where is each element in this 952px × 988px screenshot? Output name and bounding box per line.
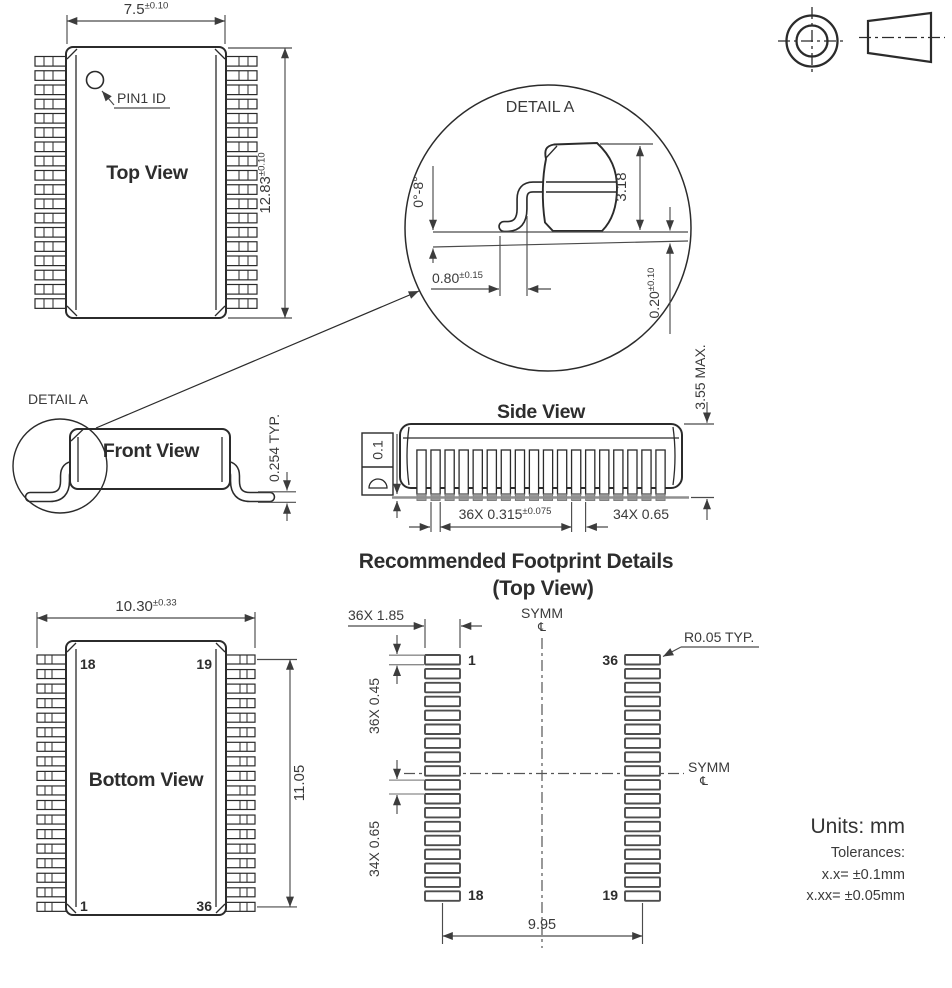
detail-body — [543, 143, 617, 231]
pin-lead — [417, 450, 426, 494]
dim-pad-length-value: 36X 1.85 — [348, 607, 404, 623]
footprint-pad — [625, 864, 660, 874]
pin-lead — [656, 450, 665, 494]
dim-lead-width: 36X 0.315±0.075 — [409, 502, 572, 532]
pin-lead — [473, 450, 482, 494]
footprint-pad — [425, 683, 460, 693]
leader-line — [663, 647, 681, 657]
front-view-title: Front View — [103, 440, 200, 462]
pin-lead — [226, 299, 257, 309]
package-drawing: PIN1 ID Top View 7.5±0.10 12.83±0.10 DET… — [0, 0, 952, 983]
pin-lead — [35, 285, 66, 295]
footprint-pad — [425, 850, 460, 860]
front-view: DETAIL A Front View 0.254 TYP. — [13, 391, 296, 521]
side-view-title: Side View — [497, 401, 586, 423]
pin-lead — [35, 57, 66, 67]
top-view: PIN1 ID Top View 7.5±0.10 12.83±0.10 — [35, 1, 292, 319]
pin-lead — [35, 270, 66, 280]
dim-lead-angle: 0°-8° — [410, 166, 433, 263]
dim-pad-length: 36X 1.85 — [348, 607, 482, 648]
dim-foot-length-value: 0.80±0.15 — [432, 270, 483, 286]
dim-pad-pitch-value: 34X 0.65 — [366, 821, 382, 877]
pin-lead — [35, 242, 66, 252]
pin-lead — [226, 71, 257, 81]
pin-lead — [35, 299, 66, 309]
pin-lead — [226, 57, 257, 67]
footprint-pad — [625, 808, 660, 818]
dim-standoff: 0.20±0.10 — [646, 207, 670, 334]
pin-lead — [226, 99, 257, 109]
footprint-title: Recommended Footprint Details — [359, 550, 674, 573]
bottom-view-pin19-label: 19 — [196, 656, 212, 672]
footprint-pad — [425, 877, 460, 887]
footprint-pad — [425, 697, 460, 707]
side-view-body — [400, 424, 682, 488]
detail-a-title: DETAIL A — [506, 99, 575, 116]
bottom-view-title: Bottom View — [89, 769, 205, 791]
dim-lead-pitch-value: 34X 0.65 — [613, 506, 669, 522]
dim-pad-corner-radius-value: R0.05 TYP. — [684, 629, 754, 645]
front-view-detail-callout: DETAIL A — [28, 391, 89, 407]
pin-lead — [586, 450, 595, 494]
pin-lead — [600, 450, 609, 494]
pin-lead — [501, 450, 510, 494]
package-drawing-page: PIN1 ID Top View 7.5±0.10 12.83±0.10 DET… — [0, 0, 952, 983]
pin-lead — [35, 199, 66, 209]
top-view-title: Top View — [106, 162, 189, 184]
footprint-pad — [425, 780, 460, 790]
dim-body-width: 7.5±0.10 — [67, 1, 225, 45]
pin-lead — [226, 213, 257, 223]
pin-lead — [642, 450, 651, 494]
pin-lead — [529, 450, 538, 494]
pin-lead — [459, 450, 468, 494]
side-view: Side View 0.1 3.55 MAX. — [362, 344, 714, 532]
dim-lead-width-value: 36X 0.315±0.075 — [459, 506, 552, 522]
dim-body-width-value: 7.5±0.10 — [124, 1, 169, 19]
dim-pad-row-span-value: 9.95 — [528, 917, 556, 933]
footprint-pad — [625, 683, 660, 693]
footprint-pad — [425, 669, 460, 679]
pin-lead — [558, 450, 567, 494]
pin-lead — [487, 450, 496, 494]
pin-lead — [226, 242, 257, 252]
footprint-pad — [425, 794, 460, 804]
dim-lead-thickness-value: 0.254 TYP. — [266, 414, 282, 482]
pin-lead — [431, 450, 440, 494]
footprint-pad — [425, 891, 460, 901]
footprint-pin18-label: 18 — [468, 887, 484, 903]
notes: Units: mm Tolerances: x.x= ±0.1mm x.xx= … — [806, 815, 905, 904]
footprint-pad — [625, 655, 660, 665]
third-angle-projection-symbol — [778, 7, 945, 75]
footprint-pad — [625, 891, 660, 901]
footprint-pad — [425, 836, 460, 846]
pin-lead — [35, 256, 66, 266]
dim-pad-width-value: 36X 0.45 — [366, 678, 382, 734]
centerline-symbol-icon: ℄ — [699, 774, 708, 788]
pin-lead — [226, 228, 257, 238]
footprint-pad — [625, 711, 660, 721]
pin-lead — [226, 256, 257, 266]
footprint-view: Recommended Footprint Details (Top View)… — [348, 550, 759, 948]
footprint-pad — [625, 725, 660, 735]
footprint-pad — [425, 711, 460, 721]
pin-lead — [226, 128, 257, 138]
dim-standoff-value: 0.20±0.10 — [646, 268, 662, 319]
dim-pad-pitch: 34X 0.65 — [366, 760, 424, 877]
tolerance-2dp-note: x.xx= ±0.05mm — [806, 888, 905, 904]
footprint-pin36-label: 36 — [602, 652, 618, 668]
pin-lead — [226, 171, 257, 181]
bottom-view-pin36-label: 36 — [196, 898, 212, 914]
dim-lead-thickness: 0.254 TYP. — [258, 414, 296, 521]
dim-body-length-value: 12.83±0.10 — [257, 152, 275, 213]
pin-lead — [35, 114, 66, 124]
footprint-pad — [625, 752, 660, 762]
seating-flatness-value: 0.1 — [370, 440, 386, 460]
footprint-pin1-label: 1 — [468, 652, 476, 668]
footprint-pad — [625, 669, 660, 679]
pin-lead — [226, 285, 257, 295]
pin-lead — [572, 450, 581, 494]
footprint-pad — [625, 836, 660, 846]
pin-lead — [35, 71, 66, 81]
footprint-subtitle: (Top View) — [492, 577, 593, 600]
dim-pin-span: 11.05 — [257, 660, 308, 907]
dim-lead-angle-value: 0°-8° — [410, 176, 426, 207]
centerline-symbol-icon: ℄ — [537, 620, 546, 634]
footprint-pad — [425, 655, 460, 665]
dim-lead-pitch: 34X 0.65 — [572, 502, 670, 532]
pin-lead — [445, 450, 454, 494]
footprint-pad — [625, 697, 660, 707]
footprint-pad — [425, 738, 460, 748]
footprint-pad — [425, 822, 460, 832]
pin-lead — [35, 85, 66, 95]
pin-lead — [226, 270, 257, 280]
pin-lead — [35, 171, 66, 181]
units-note: Units: mm — [811, 815, 906, 838]
pin-lead — [35, 99, 66, 109]
pin-lead — [543, 450, 552, 494]
dim-pad-width: 36X 0.45 — [366, 635, 424, 734]
pin-lead — [614, 450, 623, 494]
footprint-pad — [425, 766, 460, 776]
footprint-pad — [625, 794, 660, 804]
detail-a-circle — [405, 85, 691, 371]
footprint-pad — [425, 864, 460, 874]
tolerance-1dp-note: x.x= ±0.1mm — [822, 867, 905, 883]
pin-lead — [35, 156, 66, 166]
footprint-pin19-label: 19 — [602, 887, 618, 903]
seating-flatness-frame: 0.1 — [362, 433, 397, 518]
tolerances-heading: Tolerances: — [831, 845, 905, 861]
pin-lead — [35, 213, 66, 223]
dim-package-height: 3.55 MAX. — [684, 344, 714, 520]
pin-lead — [226, 114, 257, 124]
pin-lead — [35, 185, 66, 195]
dim-pin-span-value: 11.05 — [291, 765, 308, 801]
pin-lead — [226, 142, 257, 152]
footprint-pad — [625, 850, 660, 860]
footprint-pad — [425, 725, 460, 735]
pin1-id-label: PIN1 ID — [117, 90, 166, 106]
pin-lead — [226, 85, 257, 95]
symm-label-right: SYMM — [688, 759, 730, 775]
pin-lead — [515, 450, 524, 494]
dim-package-height-value: 3.55 MAX. — [692, 344, 708, 409]
pin-lead — [226, 199, 257, 209]
dim-pad-corner-radius: R0.05 TYP. — [663, 629, 759, 657]
pin1-id-circle — [87, 72, 104, 89]
bottom-view-pin18-label: 18 — [80, 656, 96, 672]
bottom-view-pin1-label: 1 — [80, 898, 88, 914]
footprint-pad — [425, 752, 460, 762]
pin-lead — [35, 142, 66, 152]
pin-lead — [226, 156, 257, 166]
footprint-pad — [425, 808, 460, 818]
symm-label-top: SYMM — [521, 605, 563, 621]
pin-lead — [628, 450, 637, 494]
footprint-pad — [625, 822, 660, 832]
footprint-pad — [625, 766, 660, 776]
pin-lead — [35, 128, 66, 138]
lead-angle-line — [433, 241, 688, 247]
dim-overall-width-value: 10.30±0.33 — [115, 598, 176, 616]
bottom-view: 18 19 1 36 Bottom View 10.30±0.33 11.05 — [37, 598, 308, 916]
pin-lead — [226, 185, 257, 195]
pin-lead — [35, 228, 66, 238]
dim-body-thickness-value: 3.18 — [613, 172, 630, 201]
dim-foot-length: 0.80±0.15 — [431, 216, 551, 296]
footprint-pad — [625, 877, 660, 887]
footprint-pad — [625, 780, 660, 790]
footprint-pad — [625, 738, 660, 748]
